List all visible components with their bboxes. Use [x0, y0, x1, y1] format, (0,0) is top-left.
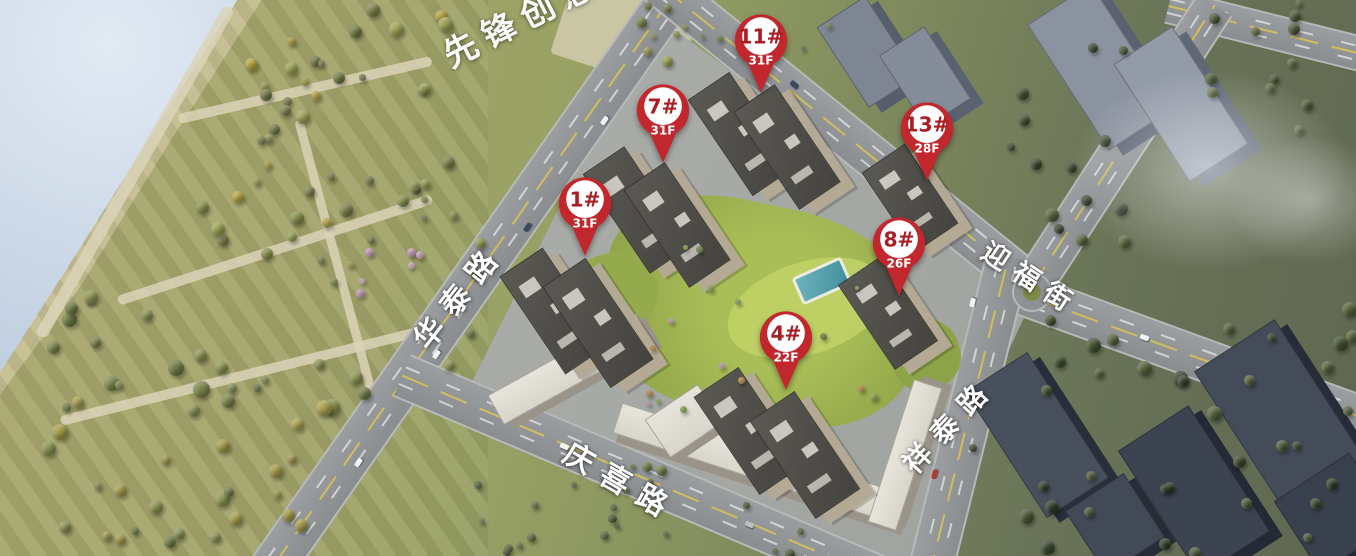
tree — [707, 285, 714, 292]
tree — [662, 56, 673, 67]
tree — [216, 439, 230, 453]
tree — [870, 393, 878, 401]
pin-building-number: 11# — [738, 24, 783, 48]
tree — [365, 176, 374, 185]
tree — [349, 371, 363, 385]
tree — [1251, 27, 1260, 36]
tree — [161, 455, 171, 465]
tree — [349, 25, 362, 38]
pin-floor-count: 26F — [886, 257, 911, 271]
tree — [1310, 498, 1321, 509]
tree — [257, 136, 266, 145]
pin-building-number: 8# — [883, 227, 914, 251]
tree — [1343, 406, 1353, 416]
tree — [614, 523, 620, 529]
tree — [466, 329, 475, 338]
tree — [347, 261, 354, 268]
tree — [290, 211, 304, 225]
tree — [416, 251, 424, 259]
tree — [1040, 540, 1055, 555]
tree — [269, 464, 283, 478]
tree — [330, 278, 338, 286]
tree — [168, 360, 184, 376]
tree — [366, 3, 380, 17]
pin-floor-count: 31F — [572, 217, 597, 231]
tree — [1118, 235, 1131, 248]
tree — [681, 24, 687, 30]
tree — [215, 361, 228, 374]
tree — [442, 156, 455, 169]
tree — [668, 318, 674, 324]
tree — [1137, 361, 1152, 376]
tree — [1030, 158, 1042, 170]
tree — [261, 248, 273, 260]
tree — [1066, 162, 1077, 173]
tree — [287, 37, 296, 46]
tree — [115, 534, 126, 545]
tree — [719, 363, 725, 369]
tree — [273, 490, 282, 499]
tree — [858, 385, 865, 392]
map-pin-icon: 7#31F — [634, 83, 692, 167]
pin-floor-count: 31F — [650, 124, 675, 138]
tree — [421, 196, 428, 203]
tree — [245, 58, 258, 71]
tree — [1086, 338, 1101, 353]
tree — [229, 512, 243, 526]
tree — [1107, 334, 1119, 346]
tree — [1114, 202, 1128, 216]
tree — [1084, 507, 1094, 517]
tree — [296, 110, 310, 124]
tree — [797, 528, 804, 535]
tree — [650, 345, 656, 351]
building-pin-1[interactable]: 1#31F — [556, 176, 614, 260]
building-pin-11[interactable]: 11#31F — [732, 13, 790, 97]
tree — [656, 399, 661, 404]
tree — [474, 481, 482, 489]
tree — [224, 487, 234, 497]
tree — [397, 195, 409, 207]
tree — [610, 504, 617, 511]
tree — [193, 381, 210, 398]
tree — [1045, 315, 1056, 326]
haze — [1220, 130, 1356, 270]
tree — [285, 62, 298, 75]
map-pin-icon: 13#28F — [898, 101, 956, 185]
tree — [531, 501, 539, 509]
tree — [301, 78, 309, 86]
tree — [673, 31, 680, 38]
tree — [772, 548, 778, 554]
map-pin-icon: 11#31F — [732, 13, 790, 97]
tree — [663, 531, 669, 537]
tree — [164, 536, 176, 548]
tree — [317, 256, 325, 264]
tree — [1045, 208, 1059, 222]
tree — [1019, 509, 1034, 524]
pin-building-number: 1# — [569, 187, 600, 211]
map-pin-icon: 4#22F — [757, 310, 815, 394]
pin-floor-count: 28F — [914, 142, 939, 156]
tree — [1189, 547, 1201, 556]
tree — [141, 309, 153, 321]
tree — [291, 418, 304, 431]
tree — [407, 248, 416, 257]
tree — [1018, 114, 1030, 126]
tree — [969, 444, 977, 452]
tree — [700, 34, 705, 39]
tree — [1321, 361, 1334, 374]
tree — [680, 406, 687, 413]
tree — [608, 514, 617, 523]
aerial-masterplan-scene: 华泰路迎福街祥泰路庆喜路先锋创意1#31F7#31F11#31F13#28F8#… — [0, 0, 1356, 556]
tree — [1265, 83, 1275, 93]
tree — [149, 500, 163, 514]
tree — [90, 337, 101, 348]
tree — [1241, 498, 1252, 509]
tree — [600, 531, 609, 540]
tree — [194, 349, 207, 362]
tree — [52, 424, 68, 440]
tree — [287, 454, 297, 464]
tree — [479, 518, 485, 524]
pin-building-number: 7# — [647, 94, 678, 118]
tree — [1205, 73, 1217, 85]
tree — [663, 4, 672, 13]
tree — [1053, 355, 1066, 368]
pin-building-number: 4# — [770, 321, 801, 345]
tree — [1088, 43, 1098, 53]
tree — [1081, 195, 1092, 206]
tree — [410, 181, 420, 191]
tree — [84, 290, 98, 304]
tree — [646, 390, 653, 397]
tree — [1233, 455, 1246, 468]
tree — [356, 289, 365, 298]
tree — [1016, 87, 1029, 100]
building-pin-8[interactable]: 8#26F — [870, 216, 928, 300]
tree — [636, 17, 647, 28]
tree — [1303, 533, 1312, 542]
tree — [327, 173, 335, 181]
tree — [59, 521, 71, 533]
tree — [232, 191, 244, 203]
tree — [1177, 375, 1189, 387]
tree — [1207, 87, 1218, 98]
tree — [115, 381, 123, 389]
pin-floor-count: 22F — [773, 351, 798, 365]
tree — [1223, 323, 1235, 335]
building-pin-13[interactable]: 13#28F — [898, 101, 956, 185]
tree — [527, 533, 536, 542]
building-pin-4[interactable]: 4#22F — [757, 310, 815, 394]
pin-building-number: 13# — [904, 112, 949, 136]
tree — [826, 23, 832, 29]
tree — [1094, 368, 1104, 378]
tree — [187, 404, 200, 417]
tree — [820, 333, 827, 340]
tree — [1099, 135, 1111, 147]
tree — [359, 278, 365, 284]
tree — [94, 482, 102, 490]
tree — [1295, 0, 1302, 7]
tree — [1038, 481, 1049, 492]
tree — [253, 178, 261, 186]
tree — [211, 222, 225, 236]
tree — [785, 549, 795, 556]
tree — [359, 74, 366, 81]
tree — [449, 211, 458, 220]
tree — [417, 86, 426, 95]
tree — [408, 262, 415, 269]
tree — [1301, 99, 1313, 111]
tree — [47, 341, 60, 354]
tree — [1119, 46, 1128, 55]
tree — [114, 484, 127, 497]
tree — [358, 387, 371, 400]
tree — [1342, 302, 1356, 317]
tree — [260, 89, 272, 101]
tree — [304, 186, 315, 197]
tree — [1267, 333, 1276, 342]
tree — [253, 384, 261, 392]
tree — [1294, 125, 1304, 135]
tree — [1160, 484, 1170, 494]
tree — [1288, 23, 1300, 35]
tree — [365, 248, 374, 257]
tree — [322, 218, 332, 228]
tree — [72, 396, 84, 408]
tree — [261, 376, 269, 384]
tree — [1076, 234, 1088, 246]
map-pin-icon: 8#26F — [870, 216, 928, 300]
tree — [743, 502, 750, 509]
tree — [314, 359, 325, 370]
tree — [389, 22, 404, 37]
tree — [333, 72, 345, 84]
tree — [1054, 224, 1064, 234]
tree — [65, 302, 78, 315]
tree — [282, 509, 295, 522]
tree — [421, 215, 427, 221]
tree — [420, 179, 430, 189]
tree — [210, 532, 221, 543]
tree — [1244, 375, 1255, 386]
tree — [339, 203, 353, 217]
tree — [855, 286, 859, 290]
tree — [287, 232, 297, 242]
tree — [227, 383, 237, 393]
tree — [683, 245, 688, 250]
tree — [1007, 143, 1015, 151]
tree — [41, 441, 56, 456]
tree — [1159, 538, 1171, 550]
tree — [311, 91, 321, 101]
tree — [1041, 385, 1052, 396]
tree — [735, 299, 741, 305]
tree — [643, 47, 652, 56]
tree — [196, 201, 209, 214]
tree — [131, 527, 139, 535]
tree — [264, 161, 272, 169]
tree — [367, 236, 375, 244]
tree — [269, 124, 280, 135]
tree — [444, 360, 455, 371]
tree — [516, 542, 523, 549]
tree — [316, 400, 332, 416]
tree — [295, 519, 308, 532]
tree — [650, 33, 656, 39]
pin-floor-count: 31F — [748, 54, 773, 68]
tree — [571, 482, 577, 488]
tree — [62, 403, 71, 412]
building-pin-7[interactable]: 7#31F — [634, 83, 692, 167]
tree — [1289, 10, 1301, 22]
tree — [1086, 471, 1096, 481]
tree — [1209, 13, 1220, 24]
tree — [280, 105, 291, 116]
tree — [1333, 336, 1348, 351]
tree — [738, 377, 745, 384]
tree — [646, 401, 651, 406]
tree — [102, 531, 112, 541]
tree — [1045, 500, 1059, 514]
tree — [318, 60, 325, 67]
tree — [1207, 406, 1222, 421]
tree — [504, 544, 513, 553]
tree — [696, 246, 703, 253]
tree — [1287, 58, 1297, 68]
tree — [801, 46, 806, 51]
tree — [1292, 441, 1301, 450]
tree — [221, 394, 235, 408]
tree — [1276, 440, 1288, 452]
tree — [644, 2, 652, 10]
tree — [716, 35, 723, 42]
map-pin-icon: 1#31F — [556, 176, 614, 260]
tree — [1326, 478, 1338, 490]
